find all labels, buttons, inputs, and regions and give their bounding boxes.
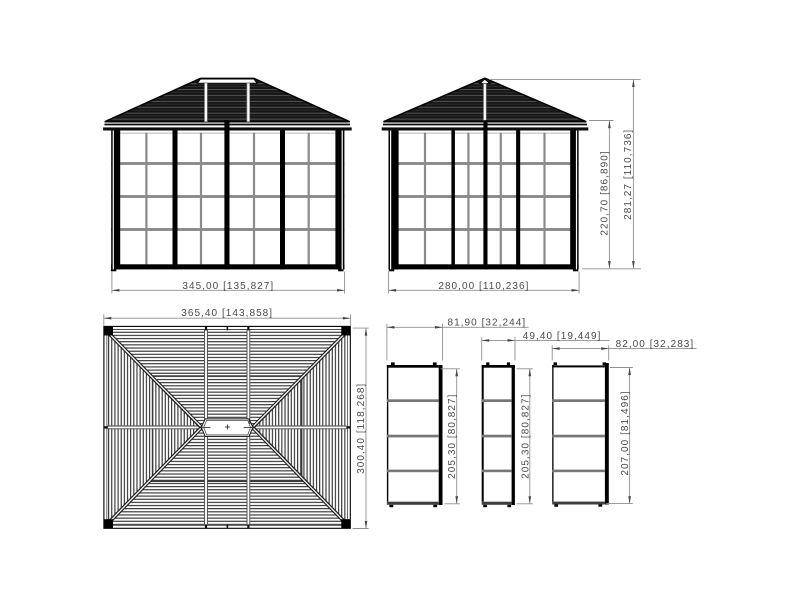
svg-text:205,30 [80,827]: 205,30 [80,827] bbox=[520, 394, 531, 479]
svg-text:365,40 [143,858]: 365,40 [143,858] bbox=[181, 308, 273, 319]
svg-text:81,90 [32,244]: 81,90 [32,244] bbox=[448, 318, 527, 329]
svg-text:280,00 [110,236]: 280,00 [110,236] bbox=[438, 281, 529, 292]
svg-text:345,00 [135,827]: 345,00 [135,827] bbox=[182, 281, 274, 292]
svg-text:207,00 [81,496]: 207,00 [81,496] bbox=[620, 390, 631, 475]
svg-text:205,30 [80,827]: 205,30 [80,827] bbox=[447, 394, 458, 479]
svg-text:300,40 [118,268]: 300,40 [118,268] bbox=[356, 383, 367, 474]
svg-text:220,70 [86,890]: 220,70 [86,890] bbox=[599, 150, 610, 235]
svg-text:82,00 [32,283]: 82,00 [32,283] bbox=[616, 339, 695, 350]
svg-text:281,27 [110,736]: 281,27 [110,736] bbox=[623, 129, 634, 220]
svg-text:49,40 [19,449]: 49,40 [19,449] bbox=[523, 331, 602, 342]
